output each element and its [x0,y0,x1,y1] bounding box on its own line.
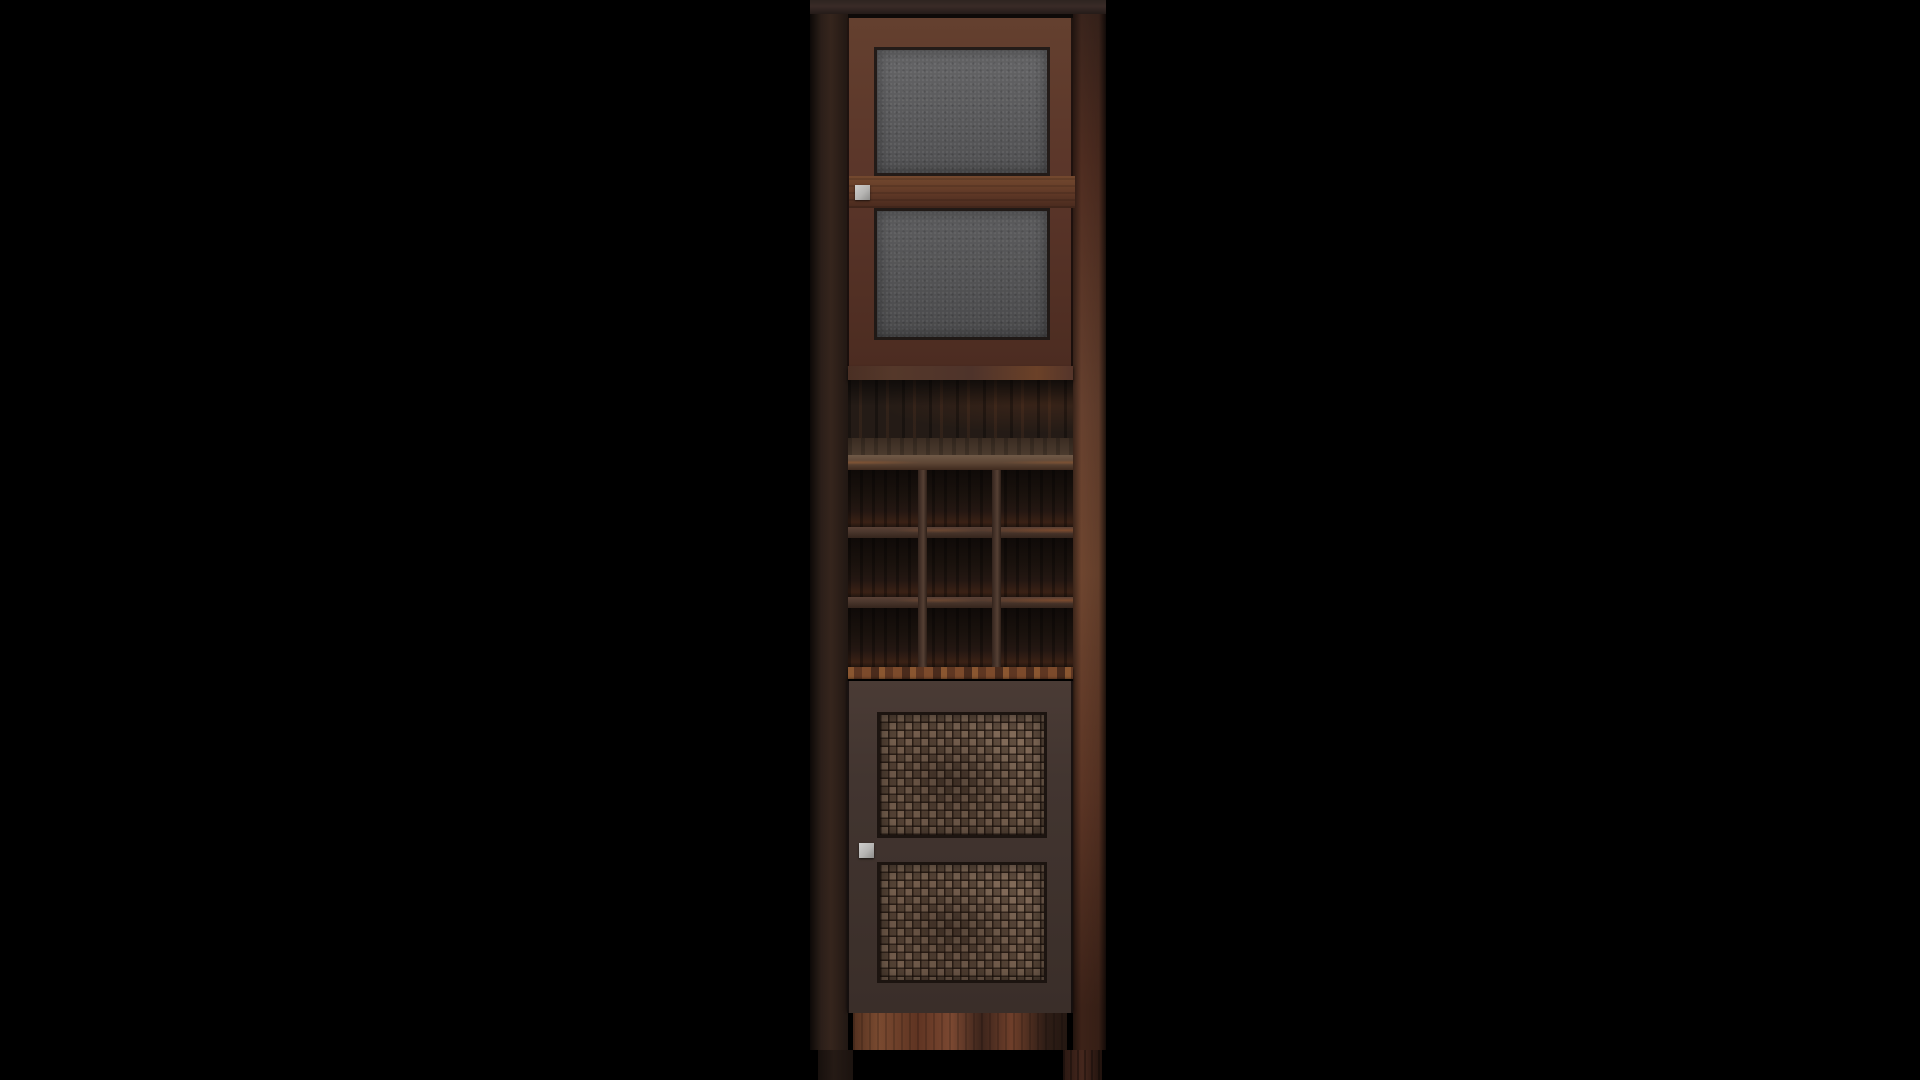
wicker-door-handle [859,843,874,858]
rack-horizontal-divider-1 [848,527,1073,538]
rack-horizontal-divider-2 [848,597,1073,608]
rack-vertical-divider-1 [918,470,927,667]
right-stile [1073,14,1106,1050]
wicker-panel-upper [877,712,1047,838]
rack-row-3-cells [848,608,1073,667]
open-shelf-compartment [848,380,1073,438]
glass-door [847,18,1073,366]
rack-bottom-shelf [848,667,1073,679]
shelf-front-edge [848,455,1073,470]
shelf-top-surface [848,438,1073,455]
rack-row-1-cells [848,470,1073,527]
left-leg [818,1050,853,1080]
wine-rack [848,470,1073,679]
wicker-panel-lower [877,862,1047,983]
right-leg [1063,1050,1102,1080]
wicker-door [847,681,1073,1013]
left-stile [810,14,848,1050]
frosted-glass-pane-lower [874,208,1050,340]
base-apron [853,1013,1067,1050]
glass-door-midrail [849,176,1075,208]
cabinet-top-board [810,0,1106,14]
rack-row-2-cells [848,538,1073,597]
rack-vertical-divider-2 [992,470,1001,667]
render-backdrop [0,0,1920,1080]
glass-door-handle [855,185,870,200]
frosted-glass-pane-upper [874,47,1050,176]
divider-shelf-board [848,366,1073,380]
wine-cabinet [810,0,1106,1080]
